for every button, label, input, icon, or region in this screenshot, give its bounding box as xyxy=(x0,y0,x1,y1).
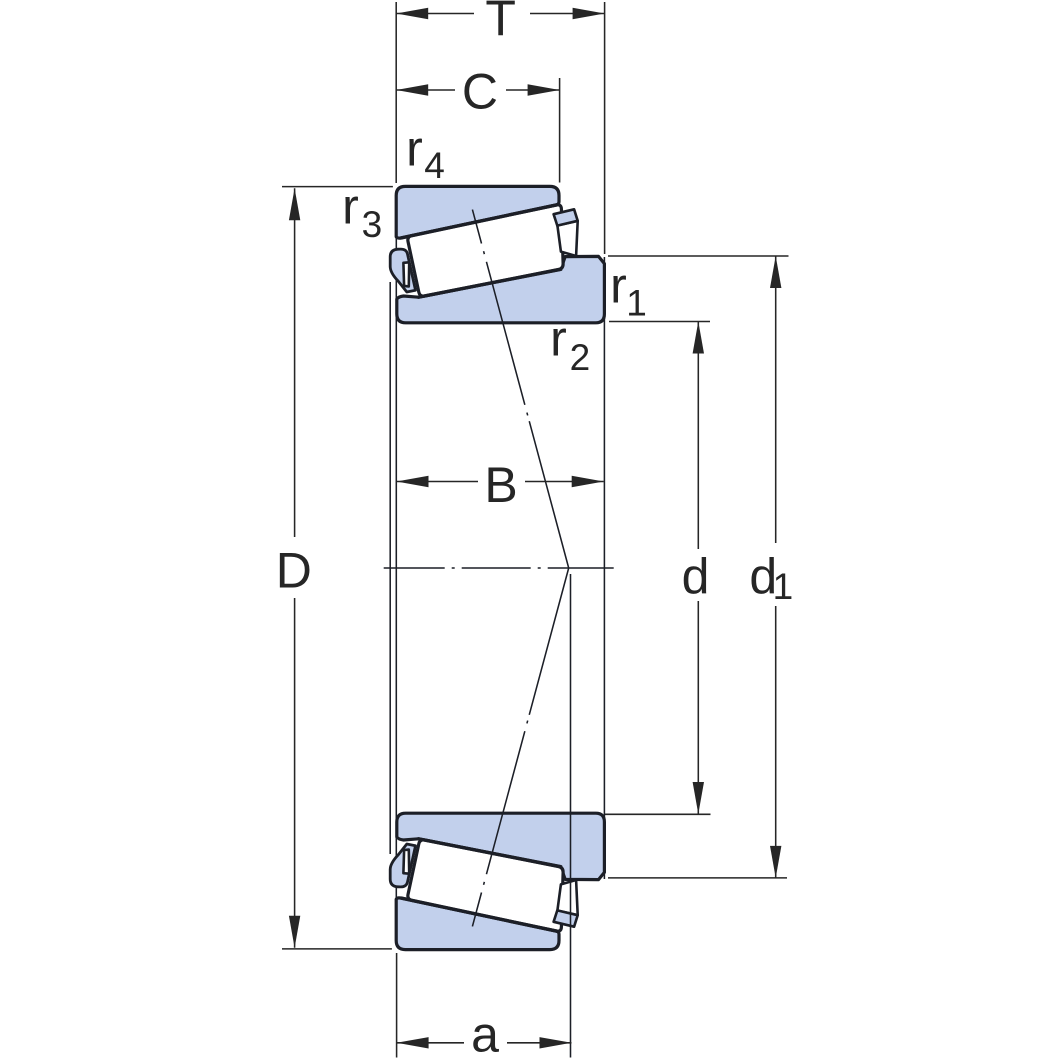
svg-text:B: B xyxy=(484,457,517,513)
svg-text:r: r xyxy=(342,179,359,235)
svg-text:D: D xyxy=(276,543,312,599)
svg-text:3: 3 xyxy=(362,204,383,245)
svg-text:C: C xyxy=(462,63,498,119)
svg-text:r: r xyxy=(550,311,567,367)
svg-text:a: a xyxy=(471,1007,499,1063)
svg-text:2: 2 xyxy=(570,337,591,378)
svg-text:1: 1 xyxy=(626,283,647,324)
svg-text:4: 4 xyxy=(424,145,445,186)
svg-text:1: 1 xyxy=(773,566,794,607)
svg-text:d: d xyxy=(682,548,710,604)
svg-text:T: T xyxy=(485,0,516,46)
svg-text:r: r xyxy=(610,258,627,314)
svg-text:r: r xyxy=(406,121,423,177)
